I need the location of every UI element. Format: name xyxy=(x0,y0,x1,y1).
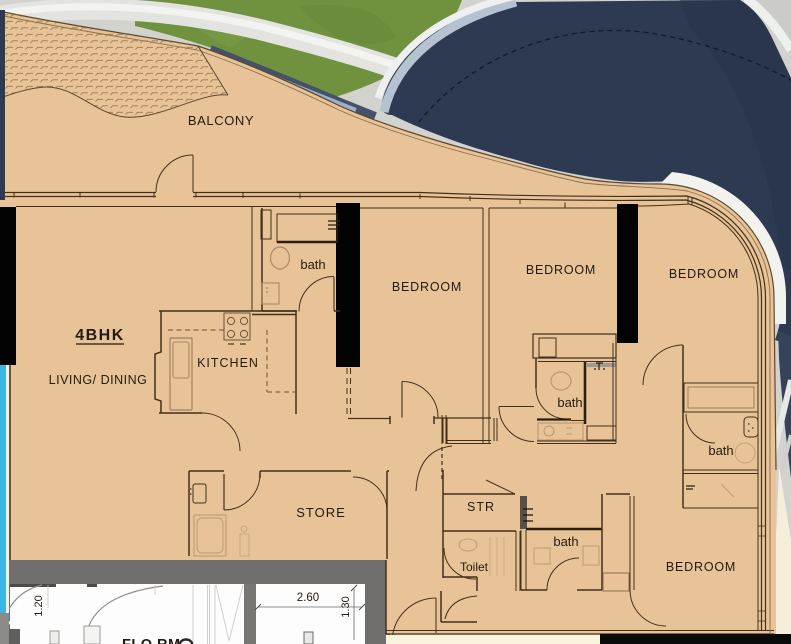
svg-text:BALCONY: BALCONY xyxy=(188,113,254,128)
svg-text:bath: bath xyxy=(300,257,325,272)
svg-text:bath: bath xyxy=(708,443,733,458)
svg-text:KITCHEN: KITCHEN xyxy=(197,356,259,370)
svg-text:Toilet: Toilet xyxy=(460,560,489,574)
svg-text:4BHK: 4BHK xyxy=(75,327,125,344)
svg-text:bath: bath xyxy=(557,395,582,410)
svg-text:BEDROOM: BEDROOM xyxy=(669,267,739,281)
svg-text:LIVING/ DINING: LIVING/ DINING xyxy=(49,373,148,387)
svg-text:BEDROOM: BEDROOM xyxy=(526,263,596,277)
svg-text:FLO RM: FLO RM xyxy=(122,637,181,644)
svg-text:bath: bath xyxy=(553,534,578,549)
svg-text:2.60: 2.60 xyxy=(297,592,319,604)
svg-text:BEDROOM: BEDROOM xyxy=(392,280,462,294)
svg-text:STR: STR xyxy=(467,500,495,514)
svg-text:1.20: 1.20 xyxy=(33,595,45,616)
svg-text:1.30: 1.30 xyxy=(340,596,352,617)
svg-text:BEDROOM: BEDROOM xyxy=(666,560,736,574)
svg-text:STORE: STORE xyxy=(296,505,346,520)
